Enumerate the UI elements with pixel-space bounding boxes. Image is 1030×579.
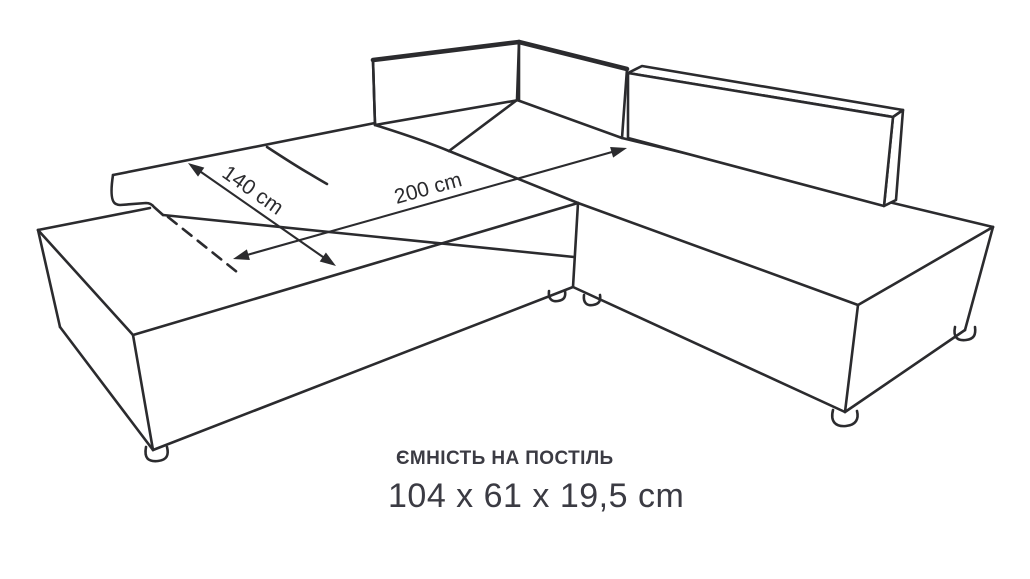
product-dimension-diagram: 140 cm 200 cm ЄМНІСТЬ НА ПОСТІЛЬ 104 x 6… (0, 0, 1030, 579)
sofa-feet (146, 291, 976, 461)
dimension-label-200: 200 cm (392, 168, 465, 209)
right-seat-top (578, 203, 993, 305)
sofa-base (38, 203, 993, 450)
left-mattress (112, 100, 578, 257)
right-backrest-cushion (628, 66, 903, 206)
corner-backrest-panel (373, 42, 627, 138)
caption-title: ЄМНІСТЬ НА ПОСТІЛЬ (396, 448, 614, 470)
hidden-edge-dashed-line (168, 217, 242, 276)
caption-dimensions: 104 x 61 x 19,5 cm (388, 477, 684, 516)
